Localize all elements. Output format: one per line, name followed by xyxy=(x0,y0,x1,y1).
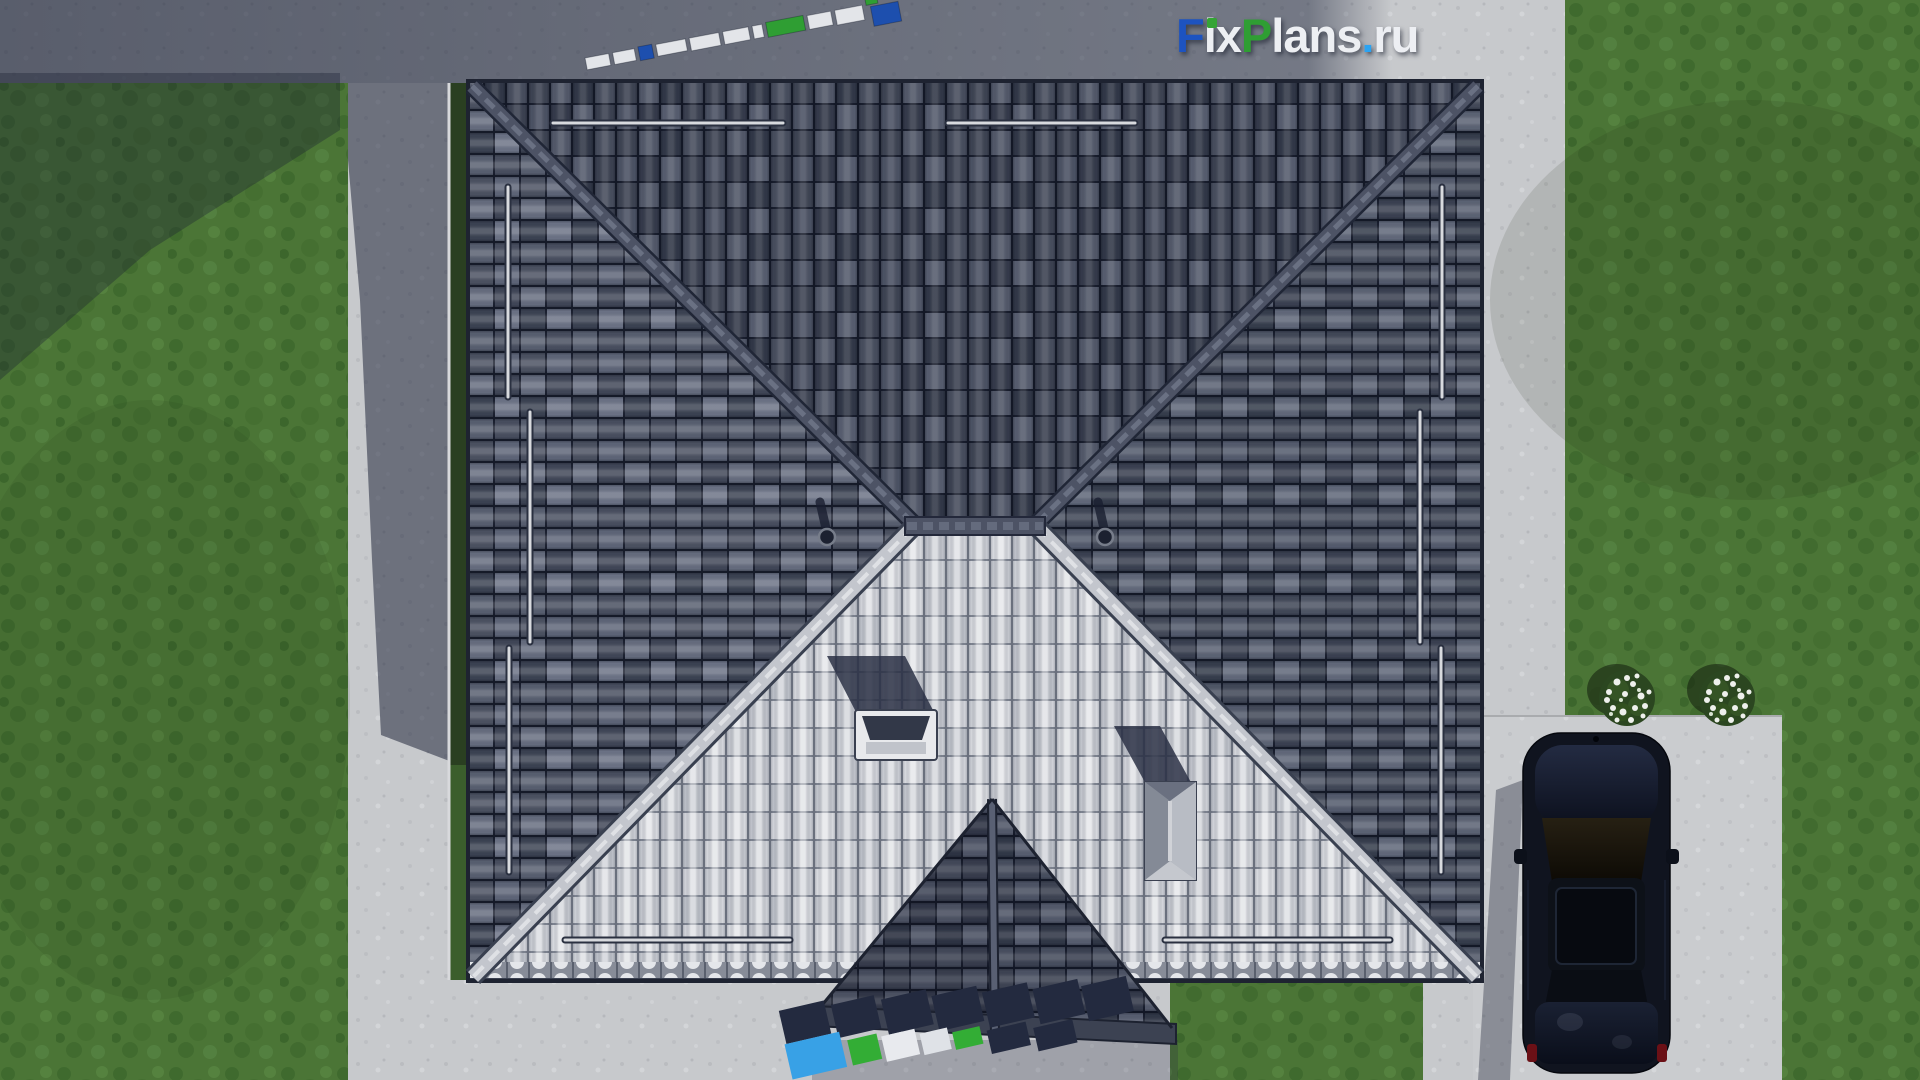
car-hood xyxy=(1535,745,1658,825)
brand-i-dot xyxy=(1207,18,1217,28)
brand-part-lans: lans xyxy=(1271,9,1361,62)
car-taillight-left xyxy=(1527,1044,1537,1062)
scene xyxy=(0,0,1920,1080)
grass-patch-bottom xyxy=(1170,973,1423,1080)
chimney xyxy=(1145,782,1196,880)
brand-part-f: F xyxy=(1176,9,1204,62)
car-rear-window xyxy=(1545,970,1648,1006)
brand-part-ru: ru xyxy=(1373,9,1418,62)
ridge-center xyxy=(905,517,1045,535)
car-sunroof xyxy=(1556,888,1636,964)
car-mirror-right xyxy=(1666,849,1679,864)
car-antenna xyxy=(1593,736,1599,742)
car-windshield xyxy=(1542,818,1651,882)
car xyxy=(1514,733,1679,1073)
skylight xyxy=(855,710,937,760)
car-taillight-right xyxy=(1657,1044,1667,1062)
brand-part-p: P xyxy=(1241,9,1271,62)
car-trunk xyxy=(1535,1002,1658,1064)
brand-logo: FixPlans.ru xyxy=(1176,10,1418,62)
brand-part-ix: ix xyxy=(1204,9,1241,62)
brand-part-dot: . xyxy=(1361,9,1373,62)
car-mirror-left xyxy=(1514,849,1527,864)
render-canvas: FixPlans.ru xyxy=(0,0,1920,1080)
